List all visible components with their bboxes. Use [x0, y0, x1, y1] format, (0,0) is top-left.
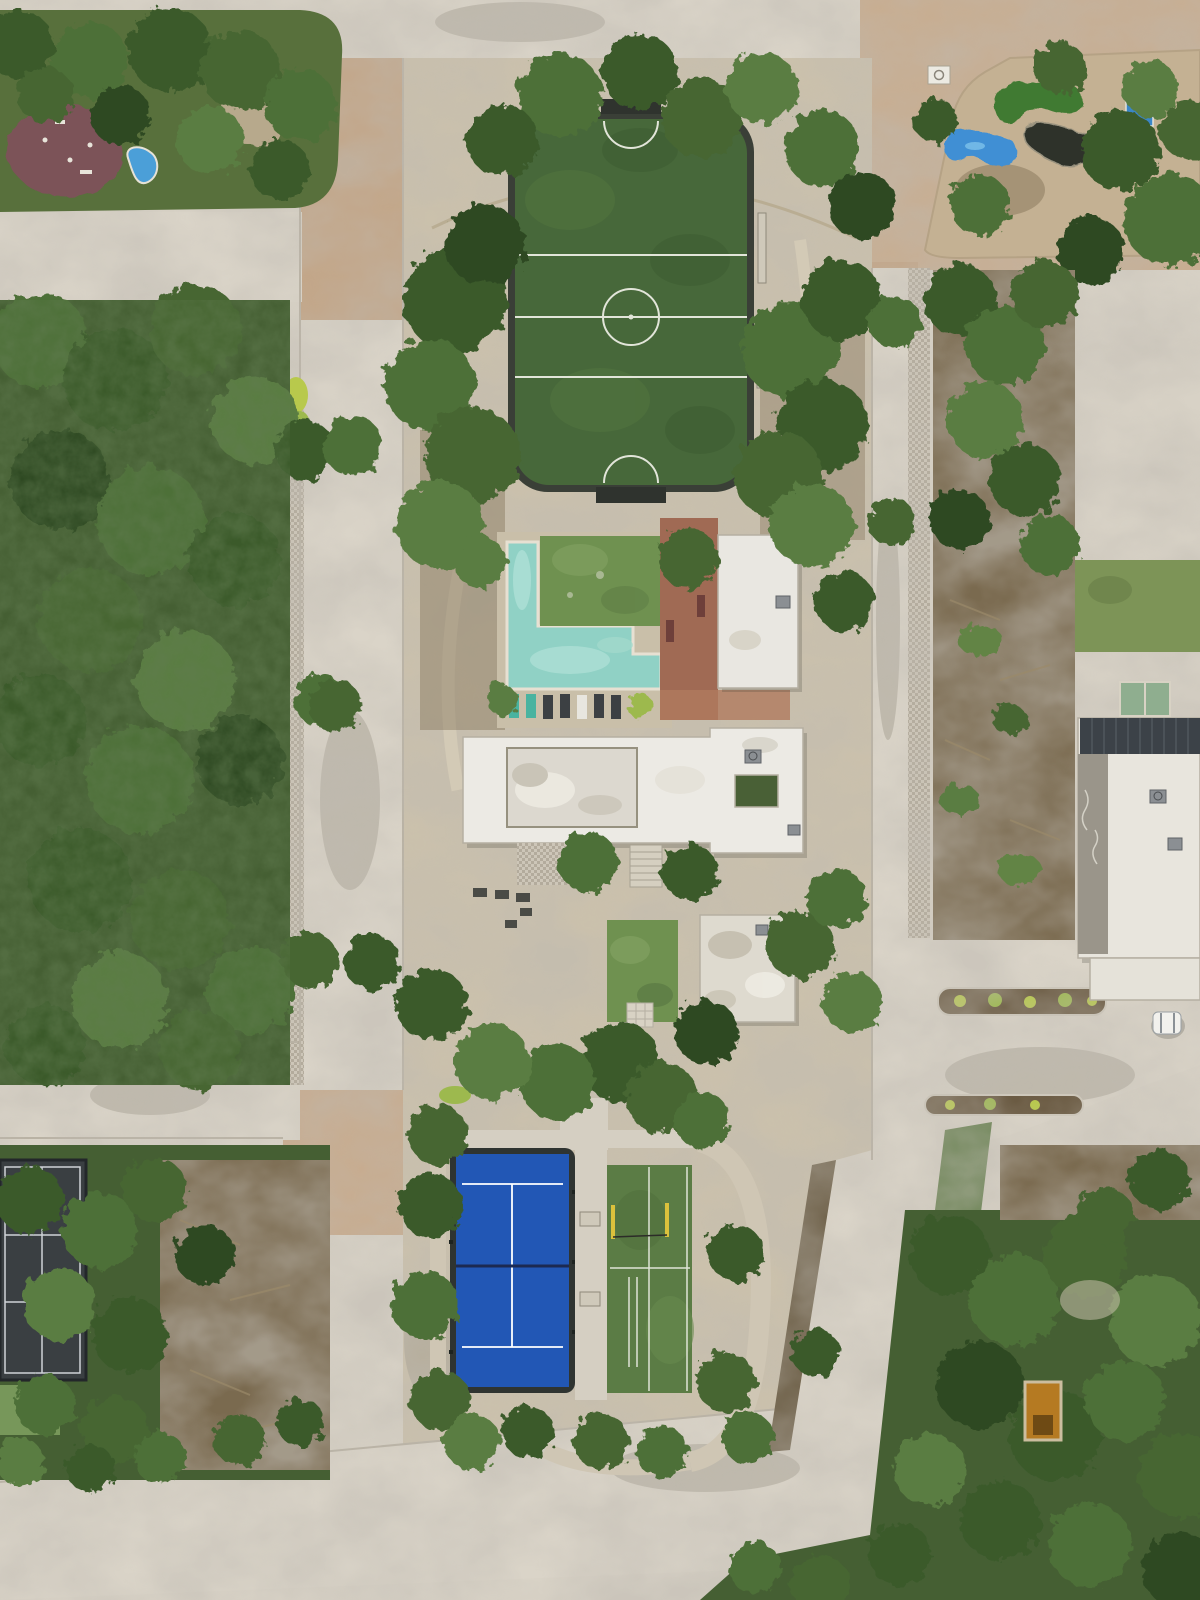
- residence-yard: [1075, 560, 1200, 652]
- residence-annex-roof: [1090, 958, 1200, 1000]
- red-bench-2: [666, 620, 674, 642]
- planter-soil: [1033, 1415, 1053, 1435]
- marker-pole-2: [665, 1203, 669, 1237]
- red-bench: [697, 595, 705, 617]
- padel-court: [449, 1148, 576, 1393]
- ac-unit-6: [1168, 838, 1182, 850]
- right-cleared-lot: [924, 261, 1080, 940]
- utility-pad-2: [928, 66, 950, 84]
- goal-south: [596, 487, 666, 503]
- training-turf: [607, 1165, 694, 1393]
- field-bench-east: [758, 213, 766, 283]
- marker-pole: [611, 1205, 615, 1239]
- ac-unit: [776, 596, 790, 608]
- parked-car: [1151, 1012, 1185, 1039]
- center-spot: [629, 315, 634, 320]
- court-bench: [580, 1212, 600, 1226]
- forest-clearing: [1060, 1280, 1120, 1320]
- court-bench-2: [580, 1292, 600, 1306]
- ac-unit-3: [788, 825, 800, 835]
- terracotta-path-2: [660, 690, 790, 720]
- courts-center-walk: [575, 1148, 607, 1400]
- pool-plant-2: [628, 693, 652, 719]
- bottom-left-block: [0, 1145, 330, 1492]
- right-residence: [1075, 560, 1200, 1000]
- pool-plant: [488, 684, 516, 716]
- ac-unit-4: [756, 925, 768, 935]
- playground-garden: [0, 8, 342, 212]
- aerial-photo-canvas: o n: [0, 0, 1200, 1600]
- aerial-scene: o n: [0, 0, 1200, 1600]
- soccer-field: [496, 99, 766, 503]
- utility-pad: [627, 1003, 653, 1027]
